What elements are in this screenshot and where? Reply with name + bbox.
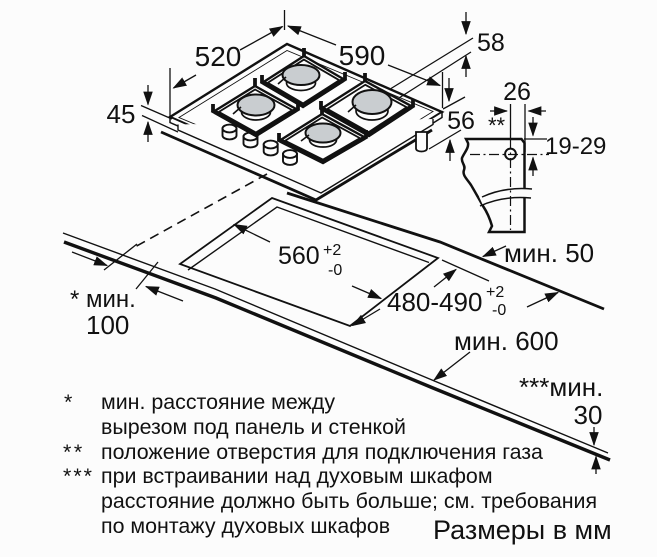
svg-text:**: **	[63, 440, 85, 464]
svg-text:положение отверстия для подклю: положение отверстия для подключения газа	[101, 440, 543, 464]
svg-text:мин. 50: мин. 50	[504, 238, 594, 268]
svg-text:Размеры в мм: Размеры в мм	[433, 515, 612, 545]
svg-text:100: 100	[86, 310, 129, 340]
svg-text:58: 58	[477, 29, 505, 57]
svg-text:по монтажу духовых шкафов: по монтажу духовых шкафов	[101, 514, 390, 538]
svg-text:***мин.: ***мин.	[519, 372, 603, 402]
svg-text:мин. 600: мин. 600	[454, 326, 559, 356]
svg-text:* мин.: * мин.	[70, 286, 136, 313]
svg-text:при встраивании над духовым шк: при встраивании над духовым шкафом	[101, 464, 493, 488]
svg-text:45: 45	[107, 99, 136, 129]
svg-text:**: **	[488, 113, 506, 138]
svg-text:520: 520	[195, 41, 242, 72]
svg-text:-0: -0	[328, 262, 342, 279]
svg-text:мин. расстояние между: мин. расстояние между	[101, 390, 335, 414]
svg-text:вырезом под панель и стенкой: вырезом под панель и стенкой	[101, 415, 406, 439]
svg-text:расстояние должно быть больше;: расстояние должно быть больше; см. требо…	[101, 489, 597, 513]
svg-text:+2: +2	[486, 284, 504, 301]
svg-text:19-29: 19-29	[545, 133, 606, 160]
svg-text:26: 26	[503, 78, 531, 106]
svg-text:30: 30	[574, 400, 603, 430]
svg-text:480-490: 480-490	[387, 287, 482, 317]
svg-text:56: 56	[447, 107, 475, 135]
svg-text:*: *	[64, 390, 72, 414]
svg-text:-0: -0	[492, 302, 506, 319]
svg-text:***: ***	[63, 464, 94, 488]
svg-text:590: 590	[339, 40, 386, 71]
svg-text:560: 560	[278, 242, 320, 270]
svg-text:+2: +2	[323, 242, 341, 259]
